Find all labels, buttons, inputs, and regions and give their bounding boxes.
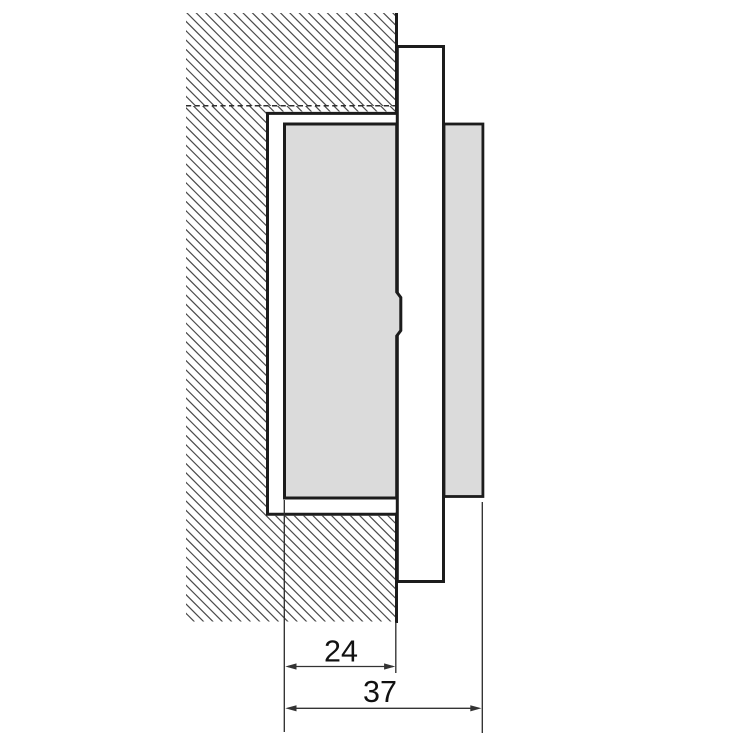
svg-text:24: 24 [324,635,358,669]
svg-text:37: 37 [363,675,397,709]
